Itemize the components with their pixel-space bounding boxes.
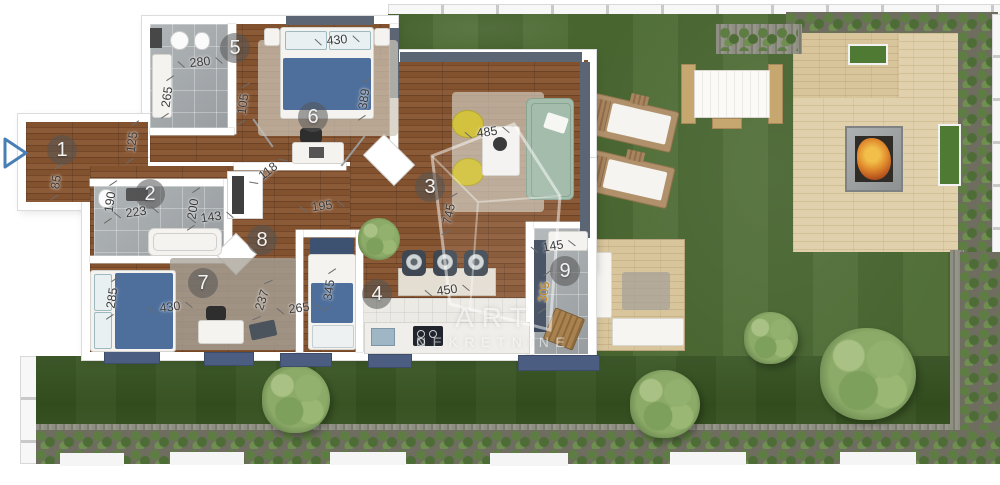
floor-plan: ART NEKRETNINE 123456789 280265105430389… bbox=[0, 0, 1000, 485]
dimension-label: 105 bbox=[232, 76, 253, 132]
dimension-label: 280 bbox=[172, 52, 228, 72]
dimension-label: 200 bbox=[182, 181, 203, 237]
watermark-line2: NEKRETNINE bbox=[416, 334, 571, 350]
dimension-label: 125 bbox=[121, 114, 142, 170]
dimension-label: 85 bbox=[46, 157, 67, 206]
room-number-badge: 7 bbox=[188, 268, 218, 298]
dimension-label: 285 bbox=[101, 270, 122, 326]
dimension-label: 265 bbox=[156, 69, 177, 125]
dimension-label: 389 bbox=[353, 71, 374, 127]
entrance-arrow-icon bbox=[2, 136, 30, 170]
room-number-badge: 8 bbox=[247, 225, 277, 255]
dimension-label: 118 bbox=[242, 149, 293, 193]
dimension-label: 430 bbox=[142, 296, 198, 317]
room-number-badge: 4 bbox=[362, 279, 392, 309]
room-number-badge: 6 bbox=[298, 102, 328, 132]
dimension-label: 430 bbox=[309, 31, 365, 50]
dimension-label: 237 bbox=[247, 272, 277, 329]
dimension-label: 345 bbox=[318, 262, 339, 318]
entrance-marker bbox=[2, 136, 30, 175]
watermark-line1: ART bbox=[455, 302, 535, 334]
dimension-label: 195 bbox=[294, 195, 350, 216]
room-number-badge: 9 bbox=[550, 256, 580, 286]
room-number-badge: 3 bbox=[415, 172, 445, 202]
